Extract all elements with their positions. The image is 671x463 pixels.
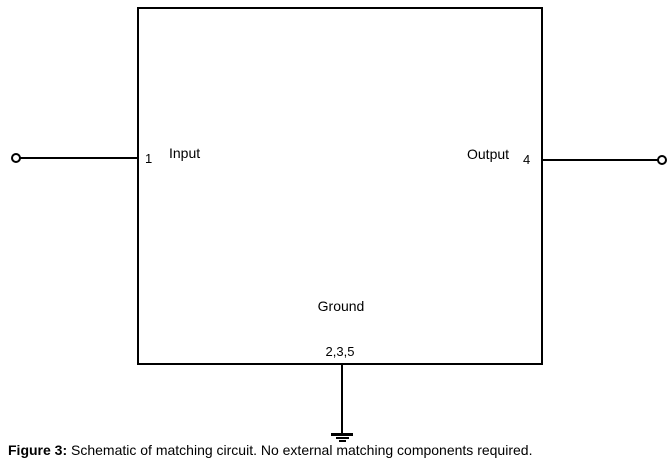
input-wire [20, 157, 137, 159]
figure-caption-label: Figure 3: [8, 442, 67, 458]
ground-pin-numbers: 2,3,5 [326, 345, 355, 358]
ground-label: Ground [318, 299, 365, 313]
ground-symbol-icon [331, 433, 353, 436]
output-pin-number: 4 [523, 153, 530, 166]
output-label: Output [467, 147, 509, 161]
figure-caption-text: Schematic of matching circuit. No extern… [67, 442, 532, 458]
input-pin-number: 1 [145, 152, 152, 165]
input-label: Input [169, 146, 200, 160]
output-terminal-circle [657, 155, 667, 165]
output-wire [543, 159, 658, 161]
figure-canvas: 1 Input Output 4 Ground 2,3,5 Figure 3: … [0, 0, 671, 463]
figure-caption: Figure 3: Schematic of matching circuit.… [8, 442, 532, 459]
ground-symbol-icon [336, 437, 349, 439]
ground-wire [341, 365, 343, 433]
